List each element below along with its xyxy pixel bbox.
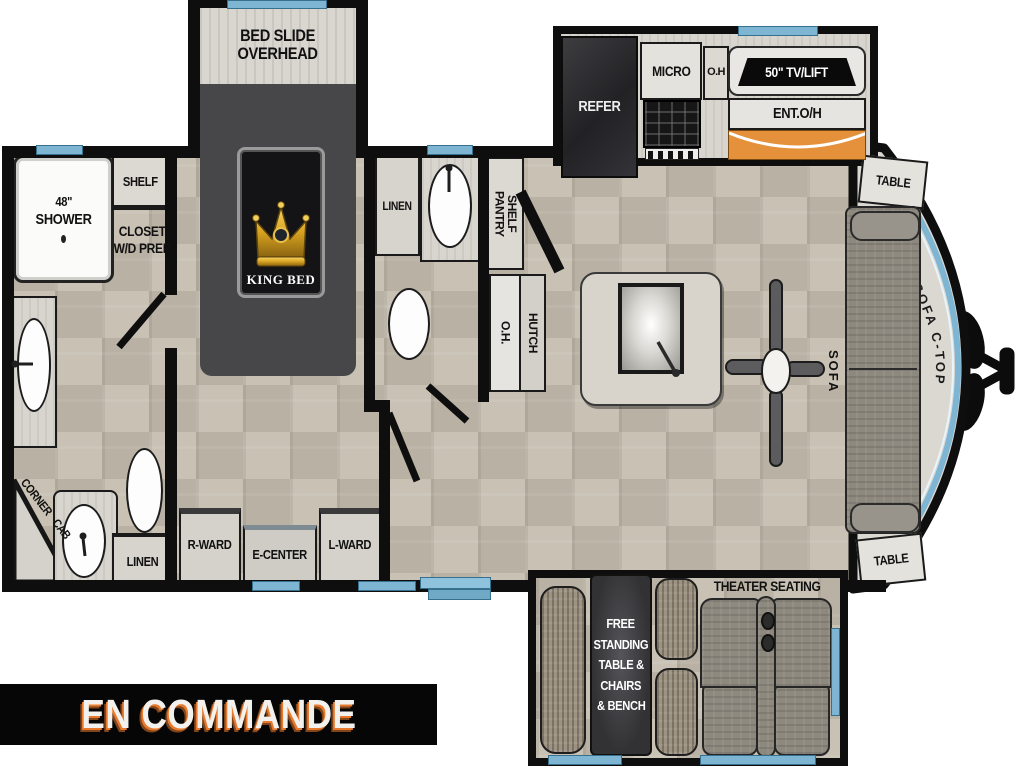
cupholder-1 bbox=[761, 612, 775, 630]
linen-main-label: LINEN bbox=[383, 200, 412, 213]
table-label-line-1: FREE bbox=[607, 617, 635, 631]
hutch-label: HUTCH bbox=[526, 313, 539, 353]
kitchen-oh-label: O.H bbox=[707, 67, 725, 79]
theater-seat-left-cushion bbox=[702, 686, 758, 756]
dinette-bench bbox=[540, 586, 586, 754]
shower-label: SHOWER bbox=[35, 212, 91, 228]
slide-window-right bbox=[831, 628, 840, 716]
sofa bbox=[845, 206, 921, 534]
main-bath-window bbox=[427, 145, 473, 155]
main-bath-toilet bbox=[388, 288, 430, 360]
crown-icon bbox=[250, 199, 312, 271]
main-bath-sink bbox=[428, 164, 472, 248]
bed-slide-overhead-box: BED SLIDE OVERHEAD bbox=[200, 8, 356, 89]
propane-tank-upper bbox=[948, 308, 989, 371]
orange-counter bbox=[728, 130, 866, 160]
ent-oh-label: ENT.O/H bbox=[773, 106, 821, 122]
table-label-line-5: & BENCH bbox=[597, 699, 646, 713]
status-banner-text: EN COMMANDE bbox=[81, 691, 356, 738]
cupholder-2 bbox=[761, 634, 775, 652]
entry-step-upper bbox=[420, 577, 491, 589]
shelf-label: SHELF bbox=[123, 175, 158, 189]
king-bed-panel: KING BED bbox=[237, 147, 325, 298]
table-label-line-4: CHAIRS bbox=[601, 679, 642, 693]
bed-slide-label-1: BED SLIDE bbox=[241, 27, 316, 45]
pantry-cabinet: PANTRY SHELF bbox=[487, 157, 524, 270]
hutch-cabinet: O.H. HUTCH bbox=[489, 274, 546, 392]
micro-label: MICRO bbox=[652, 64, 690, 79]
kingpin bbox=[1000, 348, 1014, 394]
l-ward-cabinet bbox=[319, 508, 381, 588]
entry-step-lower bbox=[428, 589, 491, 600]
bath-shelf: SHELF bbox=[112, 156, 169, 210]
bed-slide-window bbox=[227, 0, 327, 9]
stove-knob-strip bbox=[645, 148, 699, 160]
table-label-line-3: TABLE & bbox=[598, 658, 643, 672]
front-table-top: TABLE bbox=[858, 155, 929, 210]
left-wall bbox=[2, 146, 14, 592]
status-banner: EN COMMANDE bbox=[0, 684, 437, 745]
kitchen-overhead-cabinet: O.H bbox=[703, 46, 729, 100]
hitch-assembly bbox=[940, 300, 1014, 442]
bedroom-right-wall-upper bbox=[364, 148, 375, 406]
floorplan-scene: SOFA C-TOP BED SLIDE OVERHEAD KING BED bbox=[0, 0, 1024, 768]
bath-window-top bbox=[36, 145, 83, 155]
sofa-label: SOFA bbox=[826, 350, 840, 393]
bath-bedroom-wall-upper bbox=[165, 148, 177, 295]
bottom-window-ecenter bbox=[252, 581, 300, 591]
microwave: MICRO bbox=[640, 42, 702, 100]
shower-drain-icon bbox=[61, 235, 66, 243]
island-sink bbox=[618, 283, 684, 374]
bath-bedroom-wall-lower bbox=[165, 348, 177, 592]
bath-pantry-wall bbox=[478, 150, 489, 402]
e-center-cabinet bbox=[243, 525, 317, 588]
free-standing-table: FREE STANDING TABLE & CHAIRS & BENCH bbox=[590, 574, 652, 756]
bedroom-right-wall-lower bbox=[379, 410, 390, 592]
master-sink-left bbox=[17, 318, 51, 412]
kitchen-window bbox=[738, 26, 818, 36]
linen-master-label: LINEN bbox=[127, 555, 159, 569]
slide-window-bottom-right bbox=[700, 755, 816, 765]
shower-pan: 48" SHOWER bbox=[13, 155, 114, 283]
stove-cooktop bbox=[643, 100, 701, 148]
refrigerator: REFER bbox=[561, 36, 638, 178]
pantry-label-1: PANTRY bbox=[493, 191, 506, 237]
bed-slide-label-2: OVERHEAD bbox=[238, 45, 318, 63]
theater-seat-left-back bbox=[700, 598, 760, 688]
main-linen-cabinet: LINEN bbox=[375, 156, 420, 256]
theater-seat-right-back bbox=[772, 598, 832, 688]
bottom-window-hall bbox=[358, 581, 416, 591]
table-top-label: TABLE bbox=[875, 173, 911, 190]
theater-seat-right-cushion bbox=[774, 686, 830, 756]
pantry-oh-label: O.H. bbox=[499, 321, 512, 344]
table-label-line-2: STANDING bbox=[594, 638, 649, 652]
dinette-chair-2 bbox=[655, 668, 698, 756]
master-toilet bbox=[126, 448, 163, 533]
shower-size-label: 48" bbox=[55, 195, 72, 209]
pantry-oh-cabinet: O.H. bbox=[491, 276, 521, 390]
bottom-wall-right bbox=[840, 580, 886, 592]
entertainment-overhead: ENT.O/H bbox=[728, 98, 866, 130]
propane-tank-lower bbox=[948, 370, 989, 433]
pantry-label-2: SHELF bbox=[506, 195, 519, 232]
master-sink-bottom bbox=[62, 504, 106, 578]
table-bottom-label: TABLE bbox=[873, 551, 909, 568]
tv-screen bbox=[738, 58, 856, 86]
refer-label: REFER bbox=[578, 99, 620, 115]
king-bed-label: KING BED bbox=[247, 273, 316, 287]
dinette-chair-1 bbox=[655, 578, 698, 660]
slide-window-bottom-left bbox=[548, 755, 622, 765]
r-ward-cabinet bbox=[179, 508, 241, 588]
